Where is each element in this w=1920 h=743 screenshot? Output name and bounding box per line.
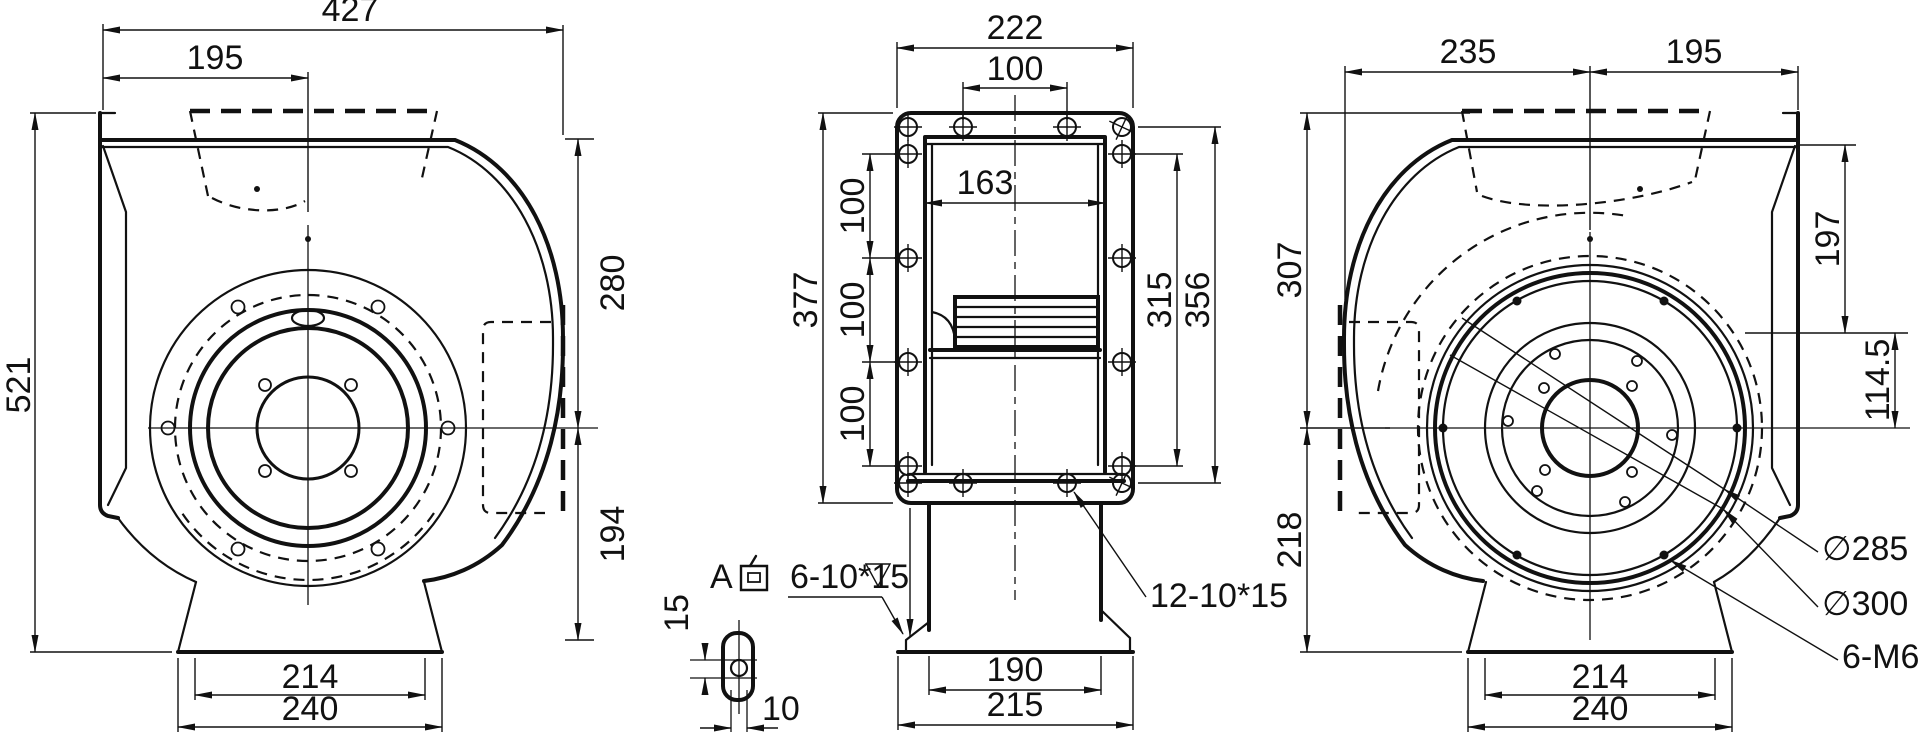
dim-side-hole-pitch-top: 100 bbox=[987, 50, 1044, 88]
dim-side-pitch2: 100 bbox=[834, 282, 872, 339]
dim-back-right: 195 bbox=[1666, 33, 1723, 71]
dim-side-pitch3: 100 bbox=[834, 386, 872, 443]
front-outline bbox=[100, 113, 563, 581]
dim-back-upper: 307 bbox=[1271, 242, 1309, 299]
back-flange-hidden bbox=[1340, 111, 1710, 520]
back-dimensions: 235 195 307 218 197 114.5 214 240 ∅285 ∅… bbox=[1271, 33, 1919, 732]
dim-back-left: 235 bbox=[1440, 33, 1497, 71]
outlet-duct-hidden bbox=[483, 322, 551, 513]
label-bolt-circle: ∅285 bbox=[1822, 530, 1908, 568]
dim-side-pitch1: 100 bbox=[834, 178, 872, 235]
dim-front-height: 521 bbox=[0, 357, 38, 414]
slot-detail: 15 10 bbox=[658, 594, 800, 732]
dim-side-width: 222 bbox=[987, 9, 1044, 47]
label-flange-slots: 12-10*15 bbox=[1150, 577, 1288, 615]
back-foot-sides bbox=[1468, 582, 1732, 652]
back-bellmouth-hidden bbox=[1462, 111, 1710, 206]
dim-side-outlet-outer: 215 bbox=[987, 686, 1044, 724]
dim-slot-length: 15 bbox=[658, 594, 696, 632]
dim-front-foot-width: 240 bbox=[282, 690, 339, 728]
dim-front-inlet-offset: 195 bbox=[187, 39, 244, 77]
dim-back-ring-top: 197 bbox=[1809, 211, 1847, 268]
cjk-xiang-glyph bbox=[741, 556, 767, 590]
side-view: 222 100 163 377 100 100 100 315 356 190 … bbox=[658, 9, 1288, 732]
dim-back-foot-width: 240 bbox=[1572, 690, 1629, 728]
dim-side-outlet-inner: 190 bbox=[987, 651, 1044, 689]
duct-foot-flares bbox=[906, 610, 1130, 652]
back-view: 235 195 307 218 197 114.5 214 240 ∅285 ∅… bbox=[1271, 33, 1919, 732]
front-foot-sides bbox=[178, 582, 442, 652]
label-view-a: A bbox=[710, 558, 733, 596]
dim-side-span-inner: 315 bbox=[1141, 272, 1179, 329]
dim-front-width: 427 bbox=[322, 0, 379, 29]
dim-front-upper: 280 bbox=[594, 255, 632, 312]
label-tapped-holes: 6-M6 bbox=[1842, 638, 1919, 676]
motor-body bbox=[955, 297, 1098, 347]
label-foot-slots: 6-10*15 bbox=[790, 558, 909, 596]
slot-outline bbox=[723, 633, 753, 700]
front-view: 427 195 521 280 194 214 240 bbox=[0, 0, 632, 732]
dim-slot-width: 10 bbox=[762, 690, 800, 728]
side-dimensions: 222 100 163 377 100 100 100 315 356 190 … bbox=[710, 9, 1288, 730]
dim-back-ring-mid: 114.5 bbox=[1859, 339, 1897, 422]
inlet-flange-hidden bbox=[190, 111, 563, 520]
dim-side-height: 377 bbox=[787, 272, 825, 329]
dim-side-span-outer: 356 bbox=[1179, 272, 1217, 329]
dim-side-inner-width: 163 bbox=[957, 164, 1014, 202]
dim-back-lower: 218 bbox=[1271, 512, 1309, 569]
dim-front-lower: 194 bbox=[594, 506, 632, 563]
drawing-canvas: 427 195 521 280 194 214 240 222 100 bbox=[0, 0, 1920, 743]
label-ring-od: ∅300 bbox=[1822, 585, 1908, 623]
bellmouth-hidden bbox=[190, 111, 437, 210]
fan-technical-drawing: 427 195 521 280 194 214 240 222 100 bbox=[0, 0, 1920, 743]
